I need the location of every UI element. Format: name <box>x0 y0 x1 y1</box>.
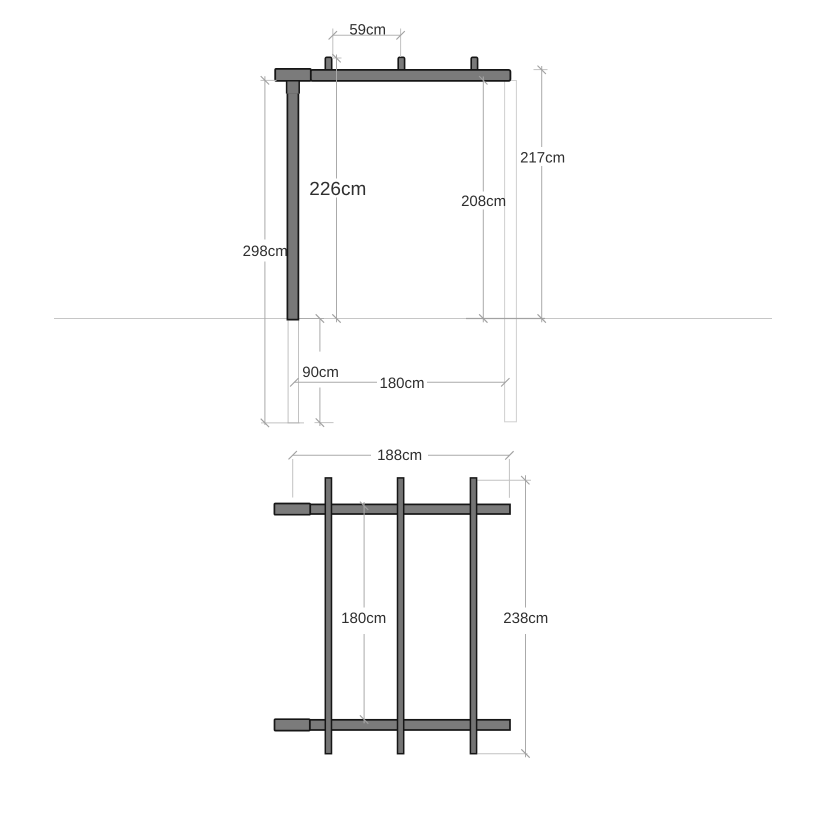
svg-text:90cm: 90cm <box>302 364 339 381</box>
svg-text:208cm: 208cm <box>461 193 506 210</box>
svg-text:217cm: 217cm <box>520 149 565 166</box>
svg-text:59cm: 59cm <box>349 21 386 38</box>
svg-text:298cm: 298cm <box>243 243 288 260</box>
svg-text:238cm: 238cm <box>503 610 548 627</box>
svg-text:188cm: 188cm <box>377 447 422 464</box>
svg-text:180cm: 180cm <box>379 375 424 392</box>
svg-text:180cm: 180cm <box>341 610 386 627</box>
svg-text:226cm: 226cm <box>309 179 366 200</box>
